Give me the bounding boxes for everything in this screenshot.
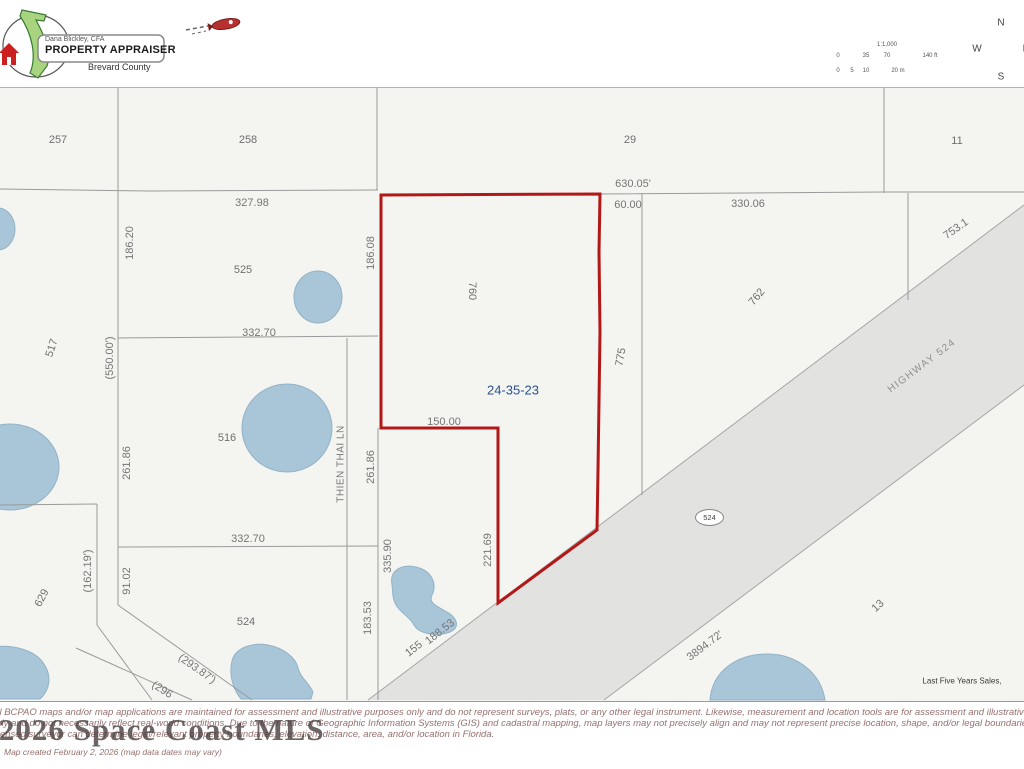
pond xyxy=(242,384,332,472)
rocket-icon xyxy=(186,17,241,34)
bcpao-map-page: { "header": { "logo": { "owner_line": "D… xyxy=(0,0,1024,768)
mls-watermark: © 2026 Space Coast MLS xyxy=(0,712,325,748)
appraiser-title: PROPERTY APPRAISER xyxy=(45,44,176,56)
pond xyxy=(294,271,342,323)
county-name: Brevard County xyxy=(88,62,151,72)
map-header: Dana Blickley, CFA PROPERTY APPRAISER Br… xyxy=(0,0,1024,88)
route-524-shield: 524 xyxy=(695,509,724,526)
appraiser-name: Dana Blickley, CFA xyxy=(45,36,104,43)
map-created-note: Map created February 2, 2026 (map data d… xyxy=(4,747,222,757)
parcel-map-canvas[interactable] xyxy=(0,0,1024,768)
